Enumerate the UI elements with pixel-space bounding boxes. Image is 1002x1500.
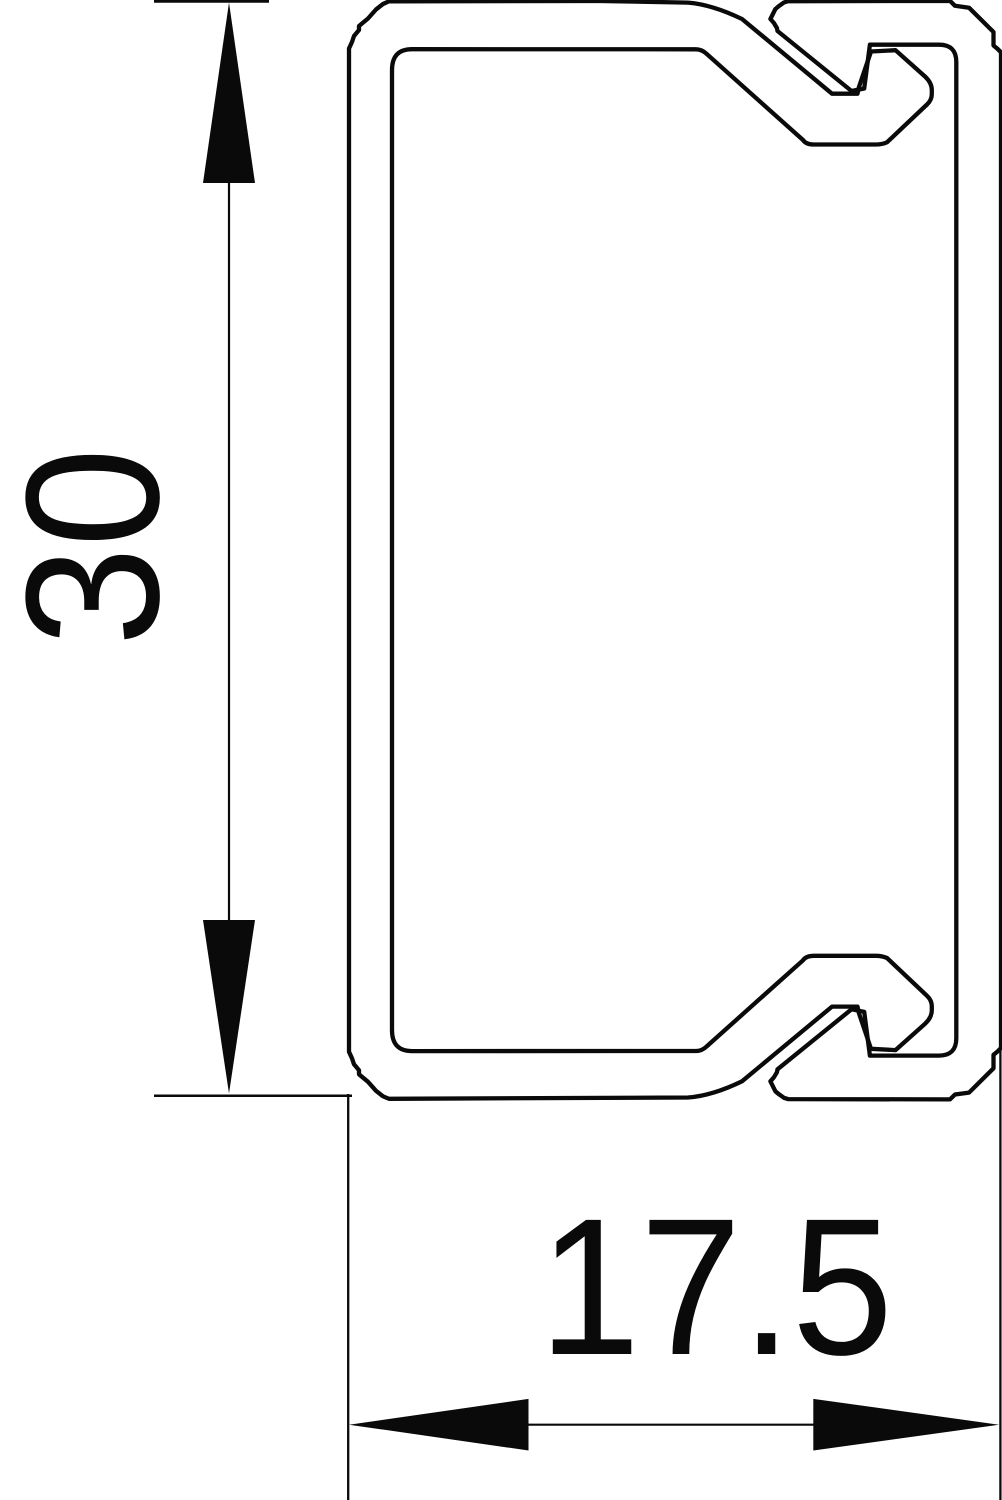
svg-text:17.5: 17.5 [539, 1177, 893, 1395]
svg-text:30: 30 [0, 448, 199, 646]
